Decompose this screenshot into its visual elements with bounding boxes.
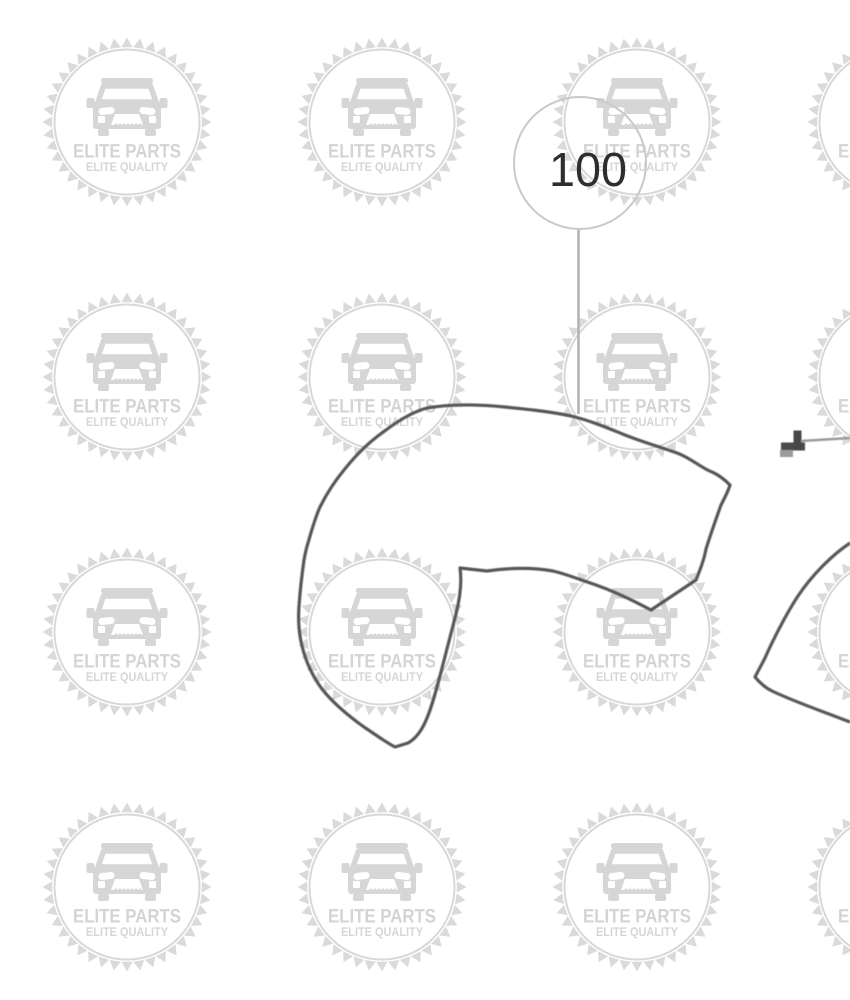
- svg-text:100: 100: [549, 144, 627, 197]
